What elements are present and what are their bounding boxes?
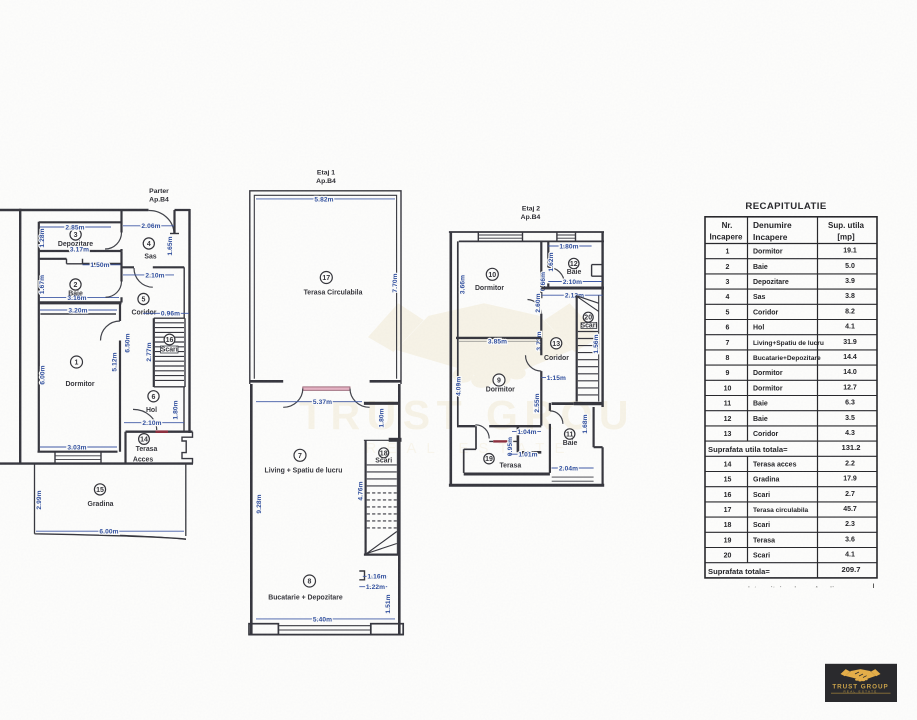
- svg-text:REAL ESTATE: REAL ESTATE: [843, 690, 877, 694]
